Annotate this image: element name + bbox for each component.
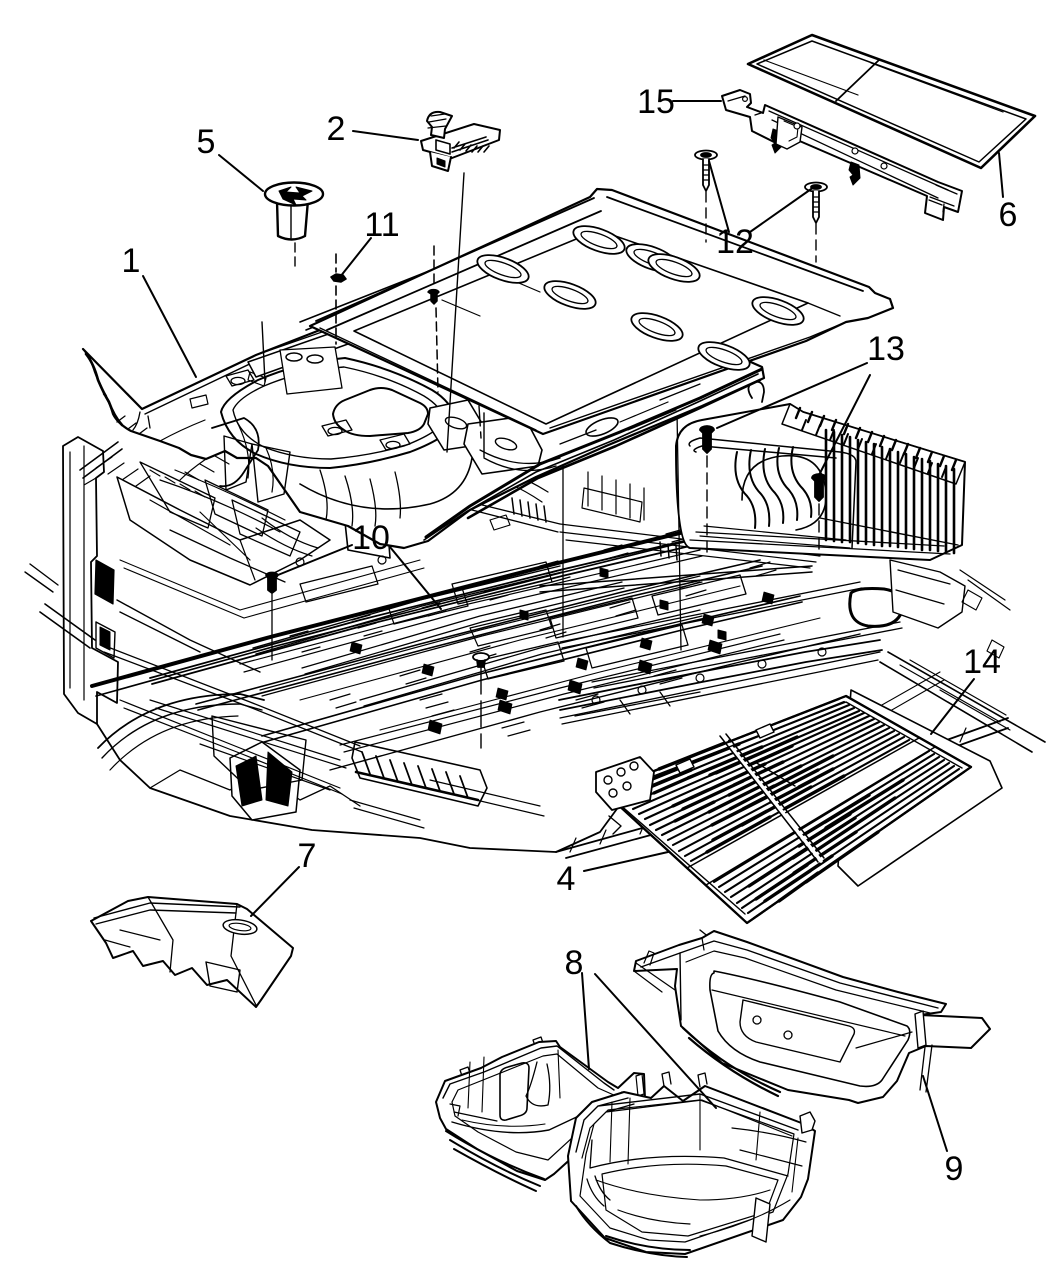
- svg-text:6: 6: [999, 196, 1018, 234]
- svg-text:13: 13: [867, 330, 905, 368]
- svg-text:2: 2: [327, 110, 346, 148]
- svg-text:9: 9: [945, 1150, 964, 1188]
- svg-text:7: 7: [298, 837, 317, 875]
- svg-text:12: 12: [716, 223, 754, 261]
- svg-text:14: 14: [963, 643, 1001, 681]
- svg-text:1: 1: [122, 242, 141, 280]
- svg-text:10: 10: [352, 519, 390, 557]
- svg-text:15: 15: [637, 83, 675, 121]
- svg-text:4: 4: [557, 860, 576, 898]
- svg-text:5: 5: [197, 123, 216, 161]
- svg-text:8: 8: [565, 944, 584, 982]
- svg-text:11: 11: [364, 206, 399, 244]
